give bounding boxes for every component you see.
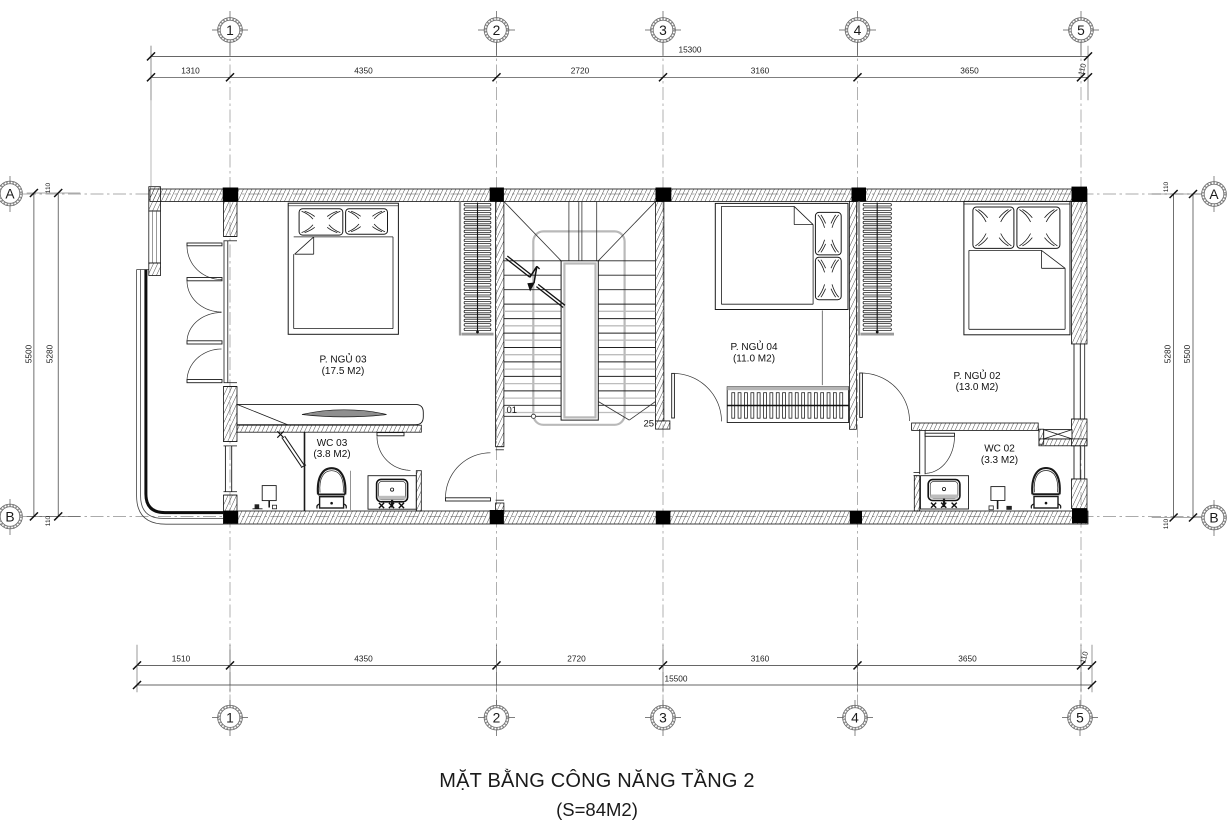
- svg-text:1: 1: [226, 23, 234, 38]
- svg-text:25: 25: [644, 419, 655, 430]
- svg-text:MẶT BẰNG CÔNG NĂNG TẦNG 2: MẶT BẰNG CÔNG NĂNG TẦNG 2: [439, 768, 754, 792]
- svg-text:(13.0 M2): (13.0 M2): [956, 382, 999, 393]
- svg-text:1310: 1310: [181, 66, 200, 76]
- svg-text:3: 3: [659, 23, 667, 38]
- svg-text:(11.0 M2): (11.0 M2): [733, 354, 775, 365]
- svg-text:1: 1: [226, 711, 234, 726]
- svg-text:3160: 3160: [751, 66, 770, 76]
- svg-text:P. NGỦ 03: P. NGỦ 03: [319, 352, 366, 365]
- svg-text:A: A: [1209, 187, 1219, 202]
- svg-text:1510: 1510: [172, 654, 191, 664]
- svg-text:P. NGỦ 02: P. NGỦ 02: [953, 369, 1000, 382]
- svg-text:(S=84M2): (S=84M2): [556, 799, 638, 820]
- svg-text:5: 5: [1077, 23, 1085, 38]
- svg-text:3160: 3160: [751, 654, 770, 664]
- svg-text:110: 110: [45, 182, 52, 193]
- svg-text:4: 4: [851, 711, 859, 726]
- svg-text:2: 2: [493, 711, 501, 726]
- svg-text:2720: 2720: [571, 66, 590, 76]
- svg-text:5280: 5280: [45, 344, 55, 363]
- svg-text:15500: 15500: [664, 674, 687, 684]
- svg-text:A: A: [5, 186, 15, 201]
- svg-text:3: 3: [659, 711, 667, 726]
- svg-text:4350: 4350: [354, 654, 373, 664]
- svg-text:3650: 3650: [960, 66, 979, 76]
- svg-text:4: 4: [854, 23, 862, 38]
- svg-text:110: 110: [1163, 518, 1170, 529]
- svg-text:(17.5 M2): (17.5 M2): [322, 366, 365, 377]
- svg-text:P. NGỦ 04: P. NGỦ 04: [730, 340, 777, 353]
- svg-text:4350: 4350: [354, 66, 373, 76]
- svg-text:(3.3 M2): (3.3 M2): [981, 455, 1018, 466]
- svg-text:5: 5: [1076, 711, 1084, 726]
- svg-text:01: 01: [507, 405, 518, 416]
- svg-text:WC 02: WC 02: [984, 444, 1015, 455]
- svg-text:15300: 15300: [678, 45, 701, 55]
- svg-text:110: 110: [45, 515, 52, 526]
- svg-text:5500: 5500: [24, 344, 34, 363]
- svg-text:WC 03: WC 03: [317, 438, 348, 449]
- svg-text:5500: 5500: [1182, 344, 1192, 363]
- svg-text:B: B: [1209, 510, 1218, 525]
- svg-text:110: 110: [1163, 181, 1170, 192]
- svg-text:3650: 3650: [958, 654, 977, 664]
- svg-text:(3.8 M2): (3.8 M2): [313, 449, 350, 460]
- svg-text:2: 2: [493, 23, 501, 38]
- svg-text:5280: 5280: [1163, 344, 1173, 363]
- svg-text:B: B: [5, 509, 14, 524]
- svg-text:2720: 2720: [567, 654, 586, 664]
